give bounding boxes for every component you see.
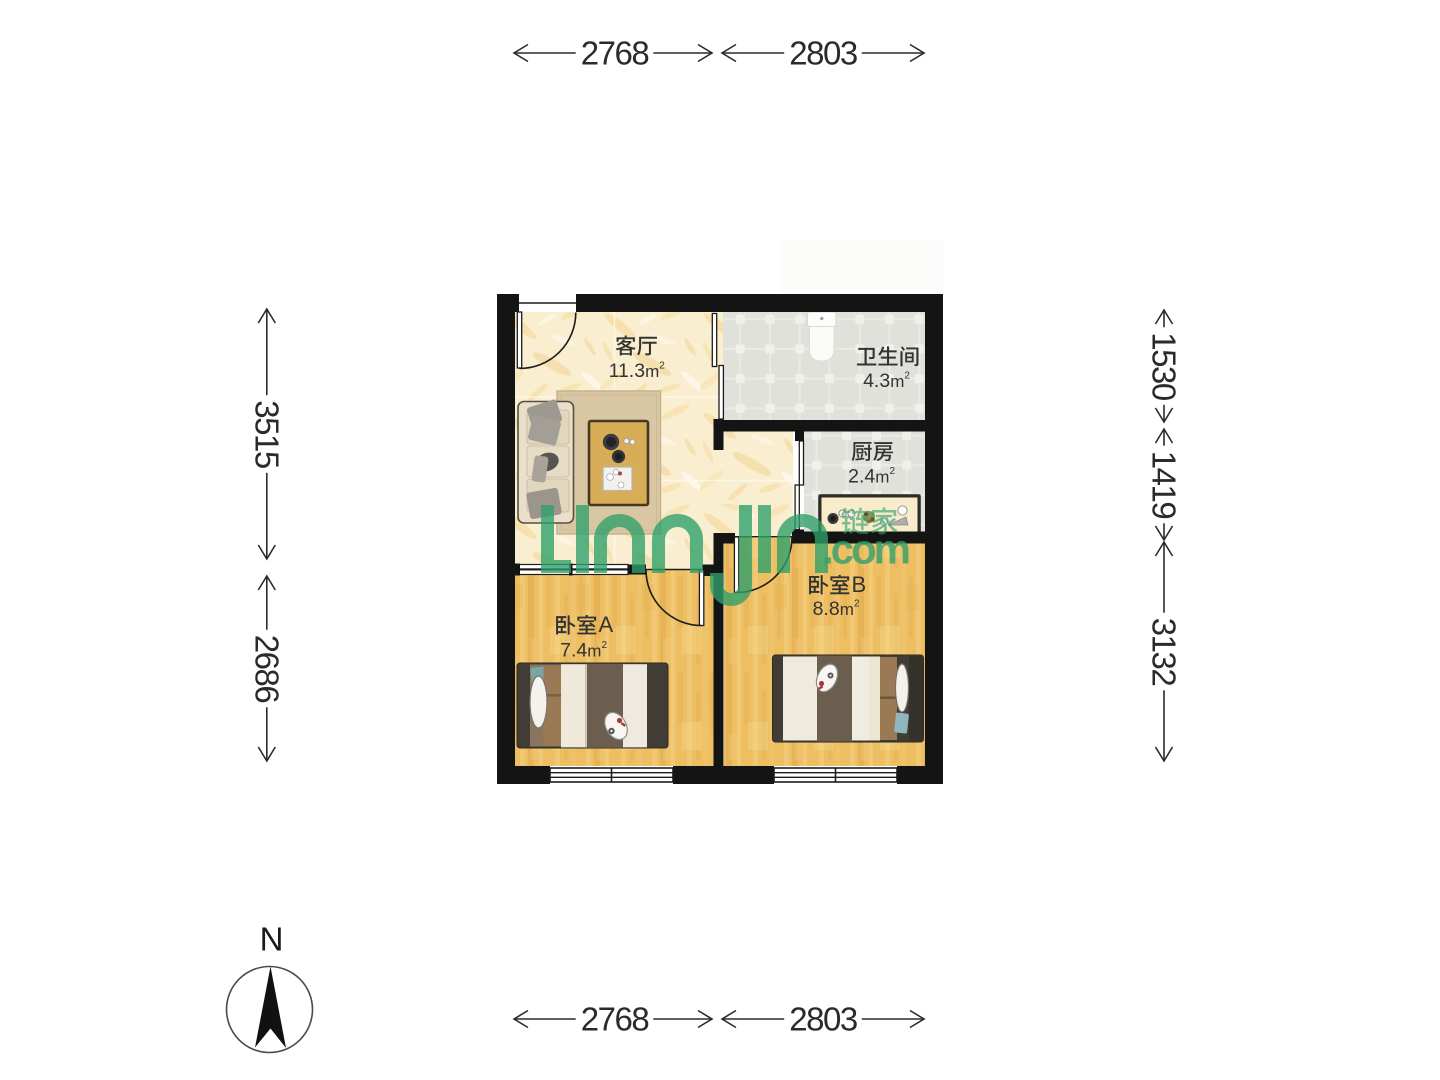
- svg-text:1419: 1419: [1146, 451, 1183, 519]
- svg-text:N: N: [260, 921, 284, 958]
- svg-text:7.4m2: 7.4m2: [560, 640, 607, 662]
- svg-text:1530: 1530: [1146, 332, 1183, 401]
- svg-text:B: B: [852, 572, 867, 597]
- svg-text:4.3m2: 4.3m2: [863, 370, 910, 392]
- svg-text:2.4m2: 2.4m2: [848, 465, 895, 487]
- svg-text:2686: 2686: [248, 635, 285, 703]
- svg-text:2803: 2803: [789, 1001, 857, 1038]
- svg-text:8.8m2: 8.8m2: [813, 598, 860, 620]
- svg-text:2803: 2803: [789, 35, 857, 72]
- svg-text:2768: 2768: [581, 1001, 649, 1038]
- svg-text:3132: 3132: [1146, 618, 1183, 686]
- svg-text:3515: 3515: [248, 400, 285, 468]
- svg-text:A: A: [599, 612, 614, 637]
- svg-text:2768: 2768: [581, 35, 649, 72]
- svg-text:11.3m2: 11.3m2: [609, 360, 666, 382]
